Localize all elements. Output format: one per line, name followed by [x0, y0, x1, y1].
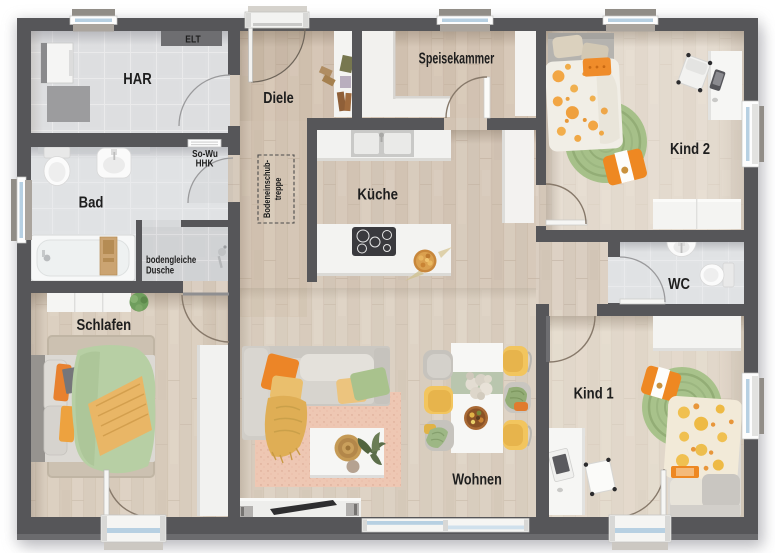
svg-text:Kind 2: Kind 2	[670, 141, 710, 158]
svg-text:bodengleiche: bodengleiche	[146, 254, 196, 265]
svg-text:Dusche: Dusche	[146, 265, 174, 276]
svg-text:Schlafen: Schlafen	[76, 317, 131, 334]
svg-text:HAR: HAR	[123, 71, 152, 88]
svg-text:Bad: Bad	[79, 194, 104, 211]
svg-text:Küche: Küche	[357, 187, 398, 204]
svg-text:WC: WC	[668, 276, 690, 293]
svg-text:Speisekammer: Speisekammer	[419, 49, 495, 67]
svg-text:HHK: HHK	[196, 158, 214, 169]
svg-text:Bodeneinschub-: Bodeneinschub-	[261, 160, 272, 218]
svg-text:Kind 1: Kind 1	[574, 385, 614, 402]
svg-text:Wohnen: Wohnen	[452, 471, 502, 489]
svg-text:Diele: Diele	[263, 90, 294, 108]
svg-text:ELT: ELT	[185, 34, 201, 45]
svg-text:treppe: treppe	[272, 177, 283, 200]
